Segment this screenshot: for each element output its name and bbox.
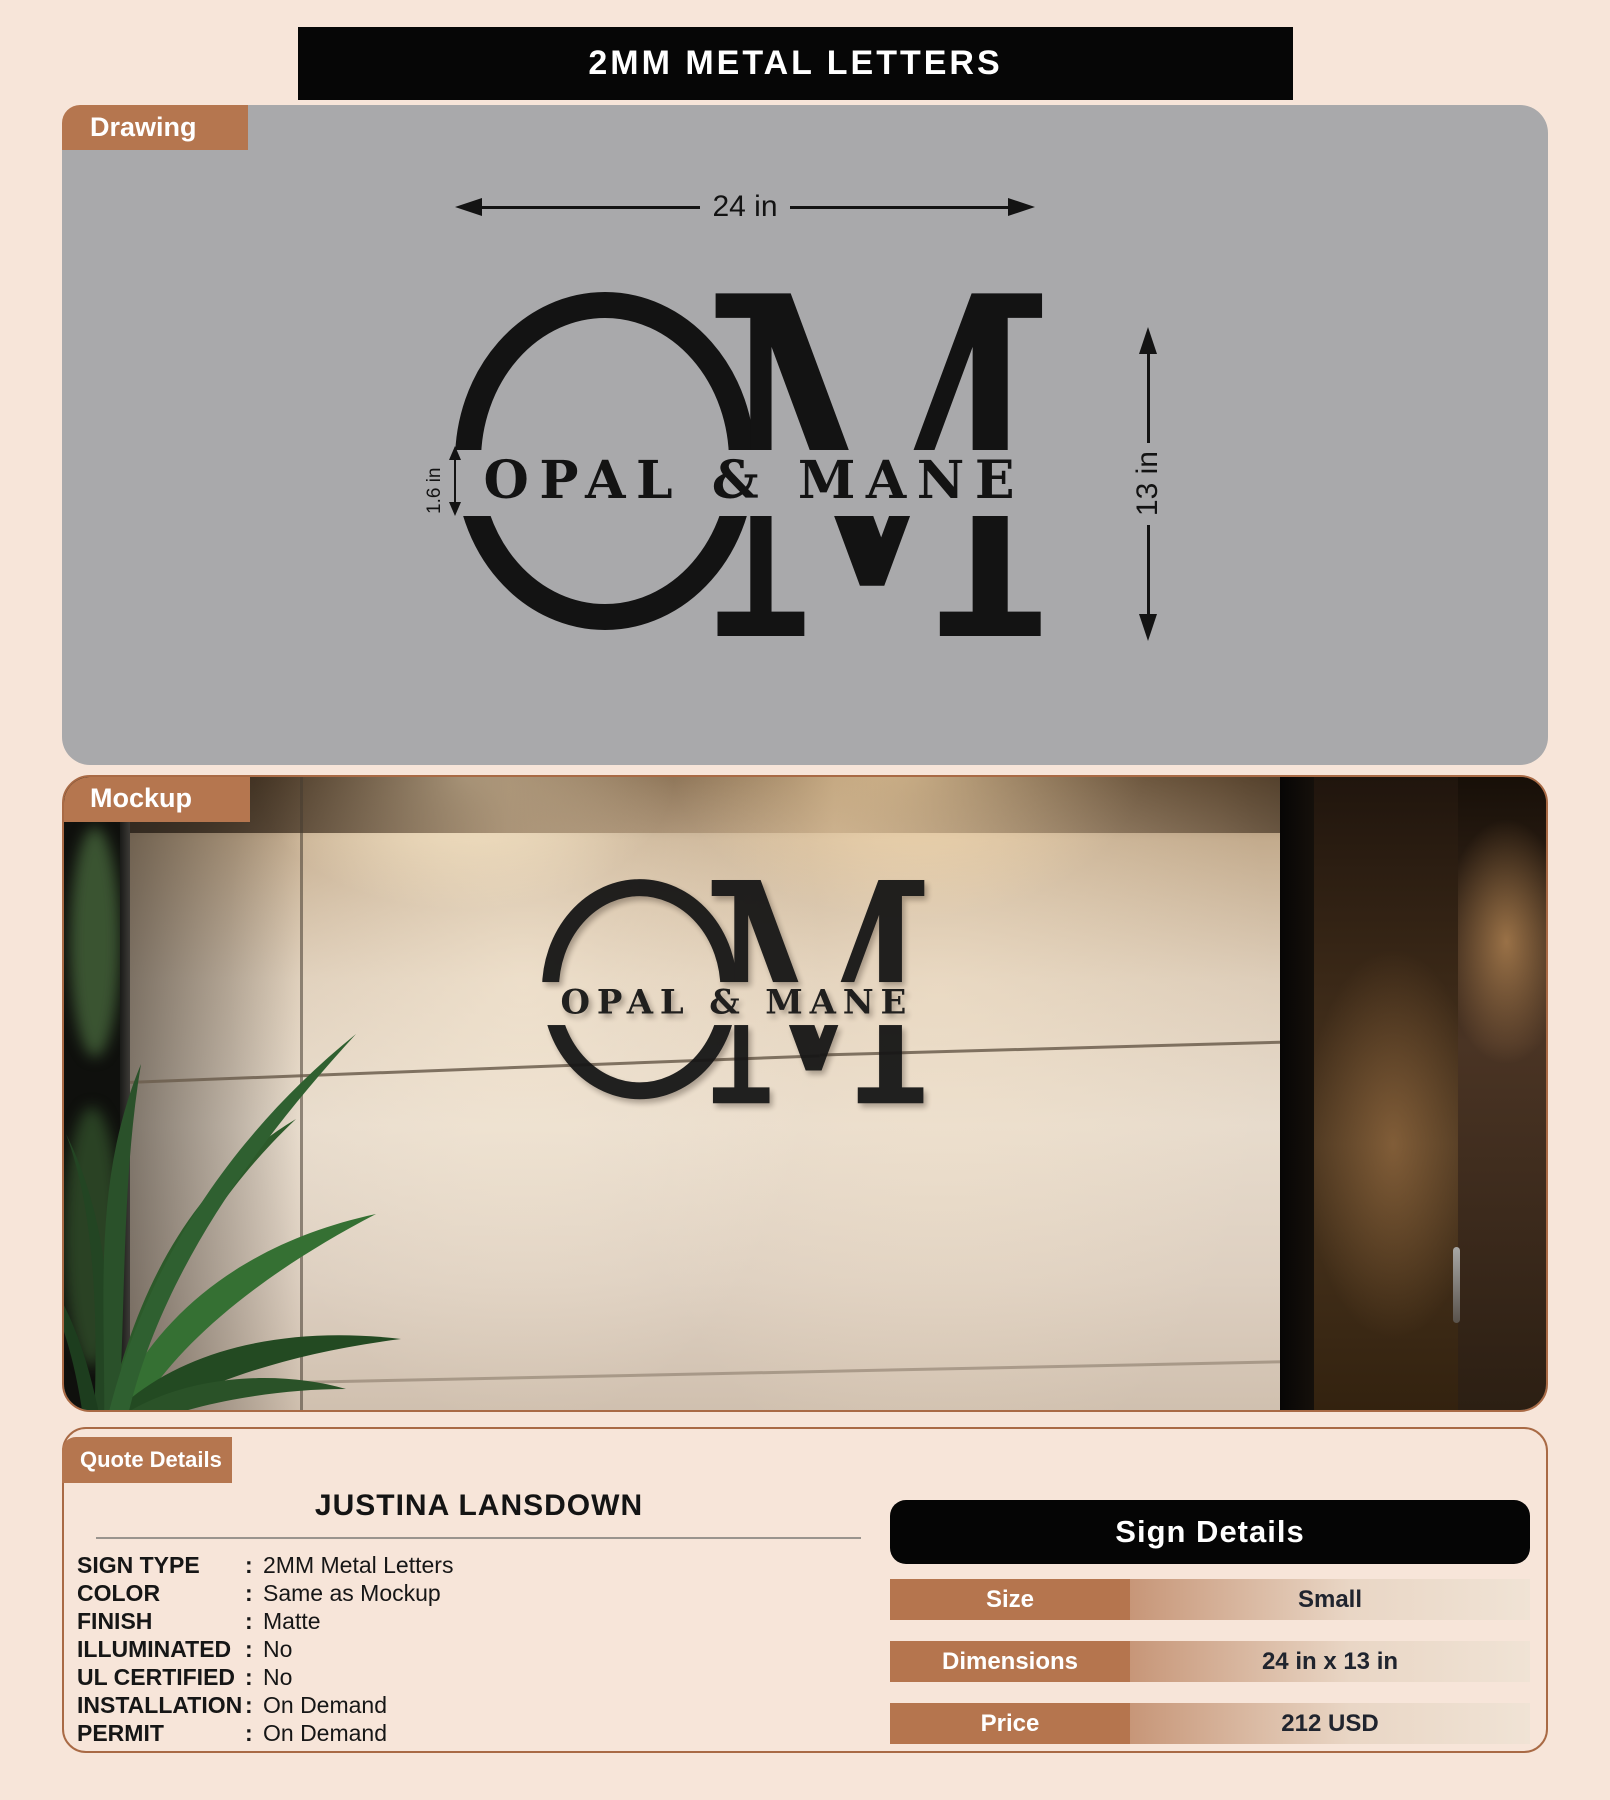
plant-image: [62, 884, 446, 1412]
spec-label: ILLUMINATED: [77, 1636, 245, 1663]
spec-separator: :: [245, 1608, 263, 1635]
height-dimension-label: 13 in: [1131, 443, 1165, 524]
spec-row: UL CERTIFIED : No: [77, 1663, 877, 1691]
drawing-tab: Drawing: [62, 105, 248, 150]
letter-height-label: 1.6 in: [424, 446, 446, 516]
spec-separator: :: [245, 1552, 263, 1579]
table-row: Dimensions 24 in x 13 in: [890, 1641, 1530, 1682]
spec-label: FINISH: [77, 1608, 245, 1635]
sign-details-table: Sign Details Size Small Dimensions 24 in…: [890, 1500, 1530, 1744]
dim-arrow-right-icon: [1008, 198, 1035, 216]
spec-label: COLOR: [77, 1580, 245, 1607]
spec-separator: :: [245, 1692, 263, 1719]
sign-details-title: Sign Details: [1115, 1514, 1304, 1550]
quote-details-tab-label: Quote Details: [80, 1447, 222, 1473]
divider: [96, 1537, 861, 1539]
door-handle: [1453, 1247, 1460, 1323]
spec-row: ILLUMINATED : No: [77, 1635, 877, 1663]
spec-value: On Demand: [263, 1720, 387, 1747]
letter-height-dimension: 1.6 in: [424, 446, 461, 516]
spec-value: 2MM Metal Letters: [263, 1552, 453, 1579]
page-title: 2MM METAL LETTERS: [588, 44, 1002, 83]
dim-arrow-down-icon: [449, 502, 461, 516]
dim-arrow-down-icon: [1139, 614, 1157, 641]
spec-separator: :: [245, 1636, 263, 1663]
spec-list: SIGN TYPE : 2MM Metal Letters COLOR : Sa…: [77, 1551, 877, 1747]
spec-value: On Demand: [263, 1692, 387, 1719]
logo-wordmark: OPAL & MANE: [561, 981, 911, 1021]
dim-line: [482, 206, 700, 209]
logo-wordmark: OPAL & MANE: [484, 450, 1021, 511]
spec-row: PERMIT : On Demand: [77, 1719, 877, 1747]
quote-details-tab: Quote Details: [62, 1437, 232, 1483]
drawing-panel: Drawing 24 in M OPAL & MANE: [62, 105, 1548, 765]
mockup-tab-label: Mockup: [90, 783, 192, 814]
row-value: 212 USD: [1130, 1703, 1530, 1744]
width-dimension: 24 in: [455, 197, 1035, 217]
dim-arrow-up-icon: [1139, 327, 1157, 354]
spec-label: SIGN TYPE: [77, 1552, 245, 1579]
row-value: 24 in x 13 in: [1130, 1641, 1530, 1682]
dim-arrow-up-icon: [449, 446, 461, 460]
row-label: Size: [890, 1579, 1130, 1620]
sign-details-header: Sign Details: [890, 1500, 1530, 1564]
door-frame: [1280, 777, 1314, 1410]
customer-name: JUSTINA LANSDOWN: [84, 1489, 874, 1523]
quote-details-panel: Quote Details JUSTINA LANSDOWN SIGN TYPE…: [62, 1427, 1548, 1753]
dim-line: [1147, 354, 1150, 443]
height-dimension: 13 in: [1130, 327, 1166, 641]
spec-label: INSTALLATION: [77, 1692, 245, 1719]
dim-line: [1147, 525, 1150, 614]
mockup-tab: Mockup: [62, 775, 250, 822]
quote-sheet-page: 2MM METAL LETTERS Drawing 24 in M: [0, 0, 1610, 1800]
spec-label: UL CERTIFIED: [77, 1664, 245, 1691]
table-row: Size Small: [890, 1579, 1530, 1620]
spec-value: No: [263, 1664, 292, 1691]
row-label: Price: [890, 1703, 1130, 1744]
spec-row: COLOR : Same as Mockup: [77, 1579, 877, 1607]
spec-value: No: [263, 1636, 292, 1663]
page-title-bar: 2MM METAL LETTERS: [298, 27, 1293, 100]
spec-row: INSTALLATION : On Demand: [77, 1691, 877, 1719]
dim-arrow-left-icon: [455, 198, 482, 216]
spec-value: Matte: [263, 1608, 321, 1635]
mockup-photo: M OPAL & MANE: [64, 777, 1546, 1410]
spec-separator: :: [245, 1720, 263, 1747]
dim-line: [454, 460, 456, 502]
row-label: Dimensions: [890, 1641, 1130, 1682]
mockup-panel: M OPAL & MANE Mockup: [62, 775, 1548, 1412]
row-value: Small: [1130, 1579, 1530, 1620]
width-dimension-label: 24 in: [700, 190, 789, 224]
door: [1314, 777, 1458, 1410]
spec-label: PERMIT: [77, 1720, 245, 1747]
right-wall: [1458, 777, 1546, 1410]
spec-separator: :: [245, 1580, 263, 1607]
spec-row: SIGN TYPE : 2MM Metal Letters: [77, 1551, 877, 1579]
dim-arrow-column: [449, 446, 461, 516]
dim-line: [790, 206, 1008, 209]
spec-separator: :: [245, 1664, 263, 1691]
table-row: Price 212 USD: [890, 1703, 1530, 1744]
drawing-tab-label: Drawing: [90, 112, 197, 143]
spec-value: Same as Mockup: [263, 1580, 441, 1607]
logo-drawing-image: M OPAL & MANE: [455, 292, 1060, 637]
sign-details-rows: Size Small Dimensions 24 in x 13 in Pric…: [890, 1579, 1530, 1744]
logo-mockup-image: M OPAL & MANE: [542, 879, 936, 1104]
spec-row: FINISH : Matte: [77, 1607, 877, 1635]
